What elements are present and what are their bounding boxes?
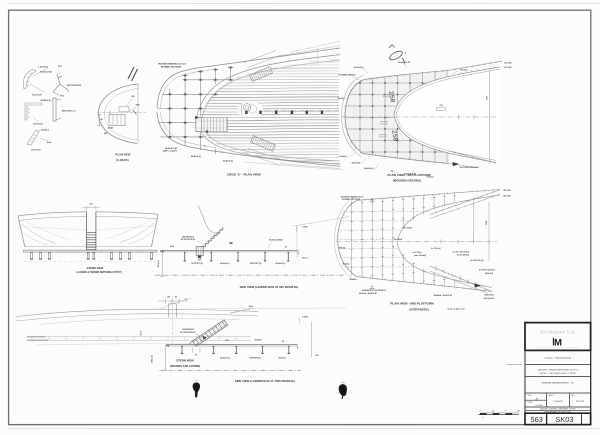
svg-text:40x4: 40x4	[170, 245, 174, 248]
svg-text:(A): (A)	[391, 169, 394, 172]
svg-text:40x4 FLAT: 40x4 FLAT	[33, 123, 43, 126]
svg-text:WL 2400: WL 2400	[504, 61, 511, 64]
svg-text:IN PANEL SECTIONS: IN PANEL SECTIONS	[161, 65, 182, 68]
svg-text:50x50x4 (L): 50x50x4 (L)	[41, 99, 52, 102]
svg-text:995: 995	[226, 340, 229, 342]
svg-text:SUPPORT (S): SUPPORT (S)	[249, 357, 261, 359]
svg-text:(OPENING FOR LADDER): (OPENING FOR LADDER)	[170, 365, 200, 368]
svg-text:LADDER BOX: LADDER BOX	[182, 328, 195, 331]
svg-text:(WOODEN GRATING): (WOODEN GRATING)	[393, 178, 421, 182]
svg-text:1500: 1500	[486, 221, 488, 225]
svg-text:GENERAL ARRANGEMENT - SK: GENERAL ARRANGEMENT - SK	[541, 382, 574, 385]
svg-text:(C-DECK): (C-DECK)	[116, 158, 128, 162]
svg-text:40: 40	[285, 245, 287, 248]
svg-text:SK PL: SK PL	[141, 331, 143, 336]
svg-text:40x40x4 FLAT: 40x40x4 FLAT	[398, 61, 411, 64]
svg-text:40x40: 40x40	[108, 127, 113, 130]
svg-text:SKI PLATFORM 40x40: SKI PLATFORM 40x40	[460, 166, 479, 169]
svg-text:IN PANEL SECTIONS: IN PANEL SECTIONS	[342, 198, 361, 201]
svg-text:Deck D: Deck D	[576, 400, 584, 403]
svg-text:40x4 (L): 40x4 (L)	[338, 97, 345, 100]
svg-text:PLAN VIEW: PLAN VIEW	[116, 153, 131, 157]
svg-text:MID (A): MID (A)	[339, 247, 346, 250]
svg-text:SUPPORT (S): SUPPORT (S)	[250, 263, 262, 265]
svg-text:188: 188	[198, 260, 201, 262]
svg-text:40x4 FLAT: 40x4 FLAT	[32, 94, 42, 97]
svg-text:SIDE VIEW (LADDER BOX AT 995 F: SIDE VIEW (LADDER BOX AT 995 FROM DL)	[240, 285, 299, 289]
svg-text:(300x4x3): (300x4x3)	[485, 272, 494, 275]
svg-text:LADDER BOX 995 FROM DL: LADDER BOX 995 FROM DL	[362, 289, 387, 292]
svg-text:40: 40	[101, 118, 103, 121]
svg-text:40x40x4 (L): 40x40x4 (L)	[220, 356, 230, 359]
svg-text:40x40x4 (L): 40x40x4 (L)	[223, 160, 234, 163]
svg-text:C. Severo Ochoa 24 - Pol. Ind.: C. Severo Ochoa 24 - Pol. Ind. - 17230 P…	[536, 348, 579, 350]
svg-text:1595 ref: 1595 ref	[302, 258, 309, 260]
svg-text:40x4 FLAT: 40x4 FLAT	[352, 162, 362, 165]
svg-text:40x40x4: 40x40x4	[350, 278, 357, 281]
svg-text:Scale-up plan 1:0.5: Scale-up plan 1:0.5	[447, 308, 464, 310]
svg-text:40x40x4: 40x40x4	[340, 155, 347, 158]
svg-text:40x40x4 + 40x4 FLAT: 40x40x4 + 40x4 FLAT	[359, 292, 378, 295]
svg-text:SIZE: SIZE	[528, 395, 531, 397]
svg-text:PLAN VIEW - SKI PLATFORM: PLAN VIEW - SKI PLATFORM	[388, 173, 431, 177]
svg-text:SK03: SK03	[555, 415, 574, 424]
svg-text:SHEET: SHEET	[549, 395, 554, 397]
svg-text:WL 2000: WL 2000	[503, 195, 510, 197]
svg-text:WOODEN GRATING: WOODEN GRATING	[339, 73, 357, 76]
svg-text:1: 1	[505, 411, 506, 413]
svg-text:1595: 1595	[136, 105, 140, 107]
svg-text:40x40x4: 40x40x4	[255, 338, 262, 341]
svg-text:PL 300x4: PL 300x4	[404, 227, 412, 230]
svg-text:A: A	[371, 197, 373, 201]
svg-text:mid 750x4: mid 750x4	[413, 251, 422, 254]
svg-text:L 50x50x4: L 50x50x4	[38, 66, 48, 69]
svg-text:(LADDER & TENDER BERTHING OUTF: (LADDER & TENDER BERTHING OUTFIT)	[76, 271, 121, 274]
svg-text:40x40x4: 40x40x4	[279, 356, 286, 359]
svg-text:1.0M: 1.0M	[315, 355, 319, 357]
svg-text:T.DOR: T.DOR	[302, 316, 308, 318]
svg-text:A: A	[371, 285, 373, 289]
svg-text:Art Mattore S.A.: Art Mattore S.A.	[540, 330, 577, 336]
svg-text:40x40x4 (L): 40x40x4 (L)	[220, 262, 230, 265]
svg-text:1,5: 1,5	[517, 411, 519, 413]
svg-text:4x 750 / 300x4 (flat): 4x 750 / 300x4 (flat)	[453, 250, 470, 253]
svg-text:WOODEN GRATING 30 mm/2: WOODEN GRATING 30 mm/2	[158, 63, 186, 66]
svg-text:40x40x4 FLAT: 40x40x4 FLAT	[40, 71, 53, 74]
svg-text:995 (ref): 995 (ref)	[158, 260, 160, 267]
svg-text:4x 750 flat 300x4x3: 4x 750 flat 300x4x3	[479, 269, 495, 272]
svg-text:DK 6: DK 6	[249, 306, 253, 308]
svg-text:(300) FLAT: (300) FLAT	[484, 294, 494, 297]
svg-text:WL 2000: WL 2000	[504, 67, 511, 69]
svg-text:FR.3: FR.3	[58, 66, 62, 68]
svg-text:plate 300x4(fl): plate 300x4(fl)	[414, 254, 426, 257]
svg-text:40: 40	[195, 353, 197, 356]
svg-text:SIDE VIEW (LADDER BOX AT 1595: SIDE VIEW (LADDER BOX AT 1595 FROM DL)	[235, 379, 295, 383]
svg-text:40x40x4 (L): 40x40x4 (L)	[354, 66, 364, 69]
svg-text:40x 300x4x3: 40x 300x4x3	[484, 297, 495, 300]
svg-text:1595 (ref): 1595 (ref)	[152, 355, 154, 363]
svg-text:AT 1595 FROM DL: AT 1595 FROM DL	[180, 331, 196, 334]
svg-text:LADDER / TENDER BERTHING OUTFI: LADDER / TENDER BERTHING OUTFIT	[538, 369, 579, 372]
svg-text:PLAN VIEW - MID PLATFORM: PLAN VIEW - MID PLATFORM	[390, 301, 434, 305]
svg-text:BAR + CLEATS: BAR + CLEATS	[163, 149, 177, 152]
svg-text:40x40x4 (L): 40x40x4 (L)	[191, 155, 202, 158]
svg-text:WL 2400: WL 2400	[503, 189, 510, 192]
svg-text:4x 750 (ref): 4x 750 (ref)	[431, 247, 441, 250]
svg-text:40x40x4: 40x40x4	[41, 129, 49, 132]
svg-text:995: 995	[132, 96, 135, 98]
svg-text:STERN VIEW: STERN VIEW	[176, 358, 194, 362]
svg-text:750: 750	[439, 105, 442, 107]
svg-text:DECK 'C' - PLAN VIEW: DECK 'C' - PLAN VIEW	[227, 172, 260, 176]
svg-text:FR.0: FR.0	[60, 96, 64, 98]
svg-text:DECK C - SKI PLATFORM / C-DECK: DECK C - SKI PLATFORM / C-DECK	[540, 372, 577, 375]
svg-text:40x4 (L): 40x4 (L)	[343, 262, 350, 265]
svg-text:563: 563	[530, 415, 543, 424]
svg-text:40x40x4 (L): 40x40x4 (L)	[276, 262, 286, 265]
svg-text:180: 180	[90, 204, 93, 206]
svg-text:40: 40	[282, 340, 284, 343]
svg-text:SECTION C-C: SECTION C-C	[62, 110, 77, 112]
svg-text:0: 0	[480, 411, 481, 413]
svg-text:(STIFFENERS): (STIFFENERS)	[409, 308, 428, 312]
svg-text:REV: REV	[571, 395, 574, 397]
svg-text:180: 180	[167, 297, 170, 299]
svg-text:40: 40	[175, 296, 177, 299]
svg-text:SECTION B-B: SECTION B-B	[67, 85, 82, 87]
svg-text:AT 995 FROM DL: AT 995 FROM DL	[181, 238, 196, 241]
svg-text:40x40x4 + 40x4 FLAT: 40x40x4 + 40x4 FLAT	[434, 294, 453, 297]
svg-text:0,5: 0,5	[492, 411, 494, 413]
svg-text:SUPPORT (S): SUPPORT (S)	[191, 263, 203, 265]
svg-text:40x40x4 FLAT: 40x40x4 FLAT	[165, 147, 178, 150]
svg-text:T.DOR: T.DOR	[302, 227, 308, 229]
svg-text:STERN VIEW: STERN VIEW	[87, 266, 104, 270]
svg-text:40x40x4 (L): 40x40x4 (L)	[364, 167, 374, 170]
svg-text:FL 300x4: FL 300x4	[394, 238, 402, 241]
svg-text:995: 995	[104, 133, 107, 135]
svg-text:4x 750 (300x4): 4x 750 (300x4)	[457, 254, 470, 257]
svg-text:C 5612 - THE NANOOK: C 5612 - THE NANOOK	[544, 357, 571, 360]
svg-text:40x40x4: 40x40x4	[461, 69, 468, 72]
svg-text:995: 995	[230, 242, 233, 244]
svg-text:LADDER BOX: LADDER BOX	[182, 236, 195, 239]
svg-text:1500: 1500	[487, 96, 489, 100]
svg-text:4x 750 (300 x4): 4x 750 (300 x4)	[471, 259, 484, 262]
svg-text:40x40x4 ANGLE: 40x40x4 ANGLE	[269, 238, 284, 241]
svg-text:40x4 FLAT: 40x4 FLAT	[31, 148, 41, 151]
svg-text:1 page(s): 1 page(s)	[553, 400, 563, 403]
